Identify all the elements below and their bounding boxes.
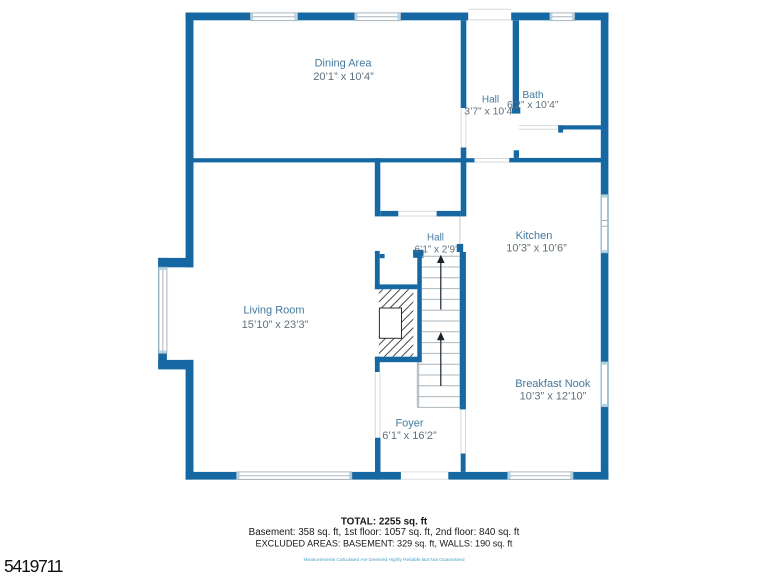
svg-text:Measurements Calculated Are De: Measurements Calculated Are Deemed Highl… xyxy=(303,557,464,563)
svg-text:Hall: Hall xyxy=(482,94,499,105)
svg-text:5419711: 5419711 xyxy=(4,556,63,576)
svg-text:6’1” x 2’9”: 6’1” x 2’9” xyxy=(415,244,459,255)
svg-text:6’1” x 16’2”: 6’1” x 16’2” xyxy=(382,430,437,442)
svg-text:10’3” x 12’10”: 10’3” x 12’10” xyxy=(520,391,587,403)
svg-text:15’10” x 23’3”: 15’10” x 23’3” xyxy=(242,319,309,331)
svg-text:Bath: Bath xyxy=(522,90,544,101)
svg-text:Dining Area: Dining Area xyxy=(315,58,373,70)
svg-text:Basement: 358 sq. ft, 1st floo: Basement: 358 sq. ft, 1st floor: 1057 sq… xyxy=(249,527,520,538)
svg-text:Breakfast Nook: Breakfast Nook xyxy=(515,378,591,390)
svg-text:EXCLUDED AREAS: BASEMENT: 329: EXCLUDED AREAS: BASEMENT: 329 sq. ft, WA… xyxy=(256,538,513,548)
svg-text:Living Room: Living Room xyxy=(243,305,304,317)
svg-text:Hall: Hall xyxy=(427,233,444,244)
svg-text:6’2” x 10’4”: 6’2” x 10’4” xyxy=(507,100,559,111)
svg-text:Kitchen: Kitchen xyxy=(516,230,553,242)
svg-text:Foyer: Foyer xyxy=(395,418,423,430)
svg-text:20’1” x 10’4”: 20’1” x 10’4” xyxy=(313,71,374,83)
svg-text:TOTAL: 2255 sq. ft: TOTAL: 2255 sq. ft xyxy=(341,517,428,528)
svg-text:10’3” x 10’6”: 10’3” x 10’6” xyxy=(506,243,567,255)
